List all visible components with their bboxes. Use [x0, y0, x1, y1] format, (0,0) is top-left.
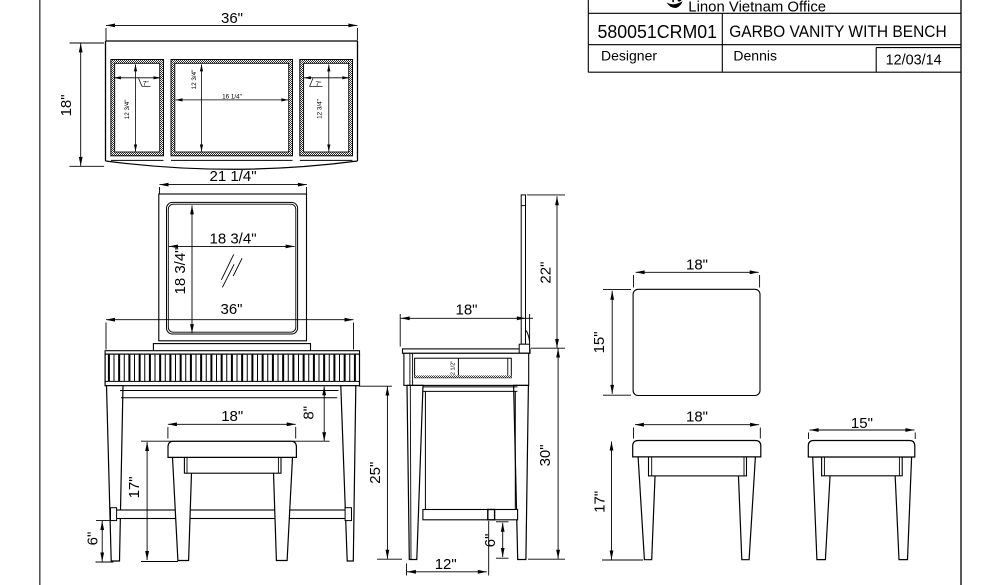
- svg-text:GARBO VANITY WITH BENCH: GARBO VANITY WITH BENCH: [729, 23, 947, 41]
- svg-text:8": 8": [301, 406, 318, 420]
- svg-text:36": 36": [220, 301, 242, 318]
- svg-text:18 3/4": 18 3/4": [209, 230, 256, 247]
- svg-text:Designer: Designer: [601, 48, 657, 64]
- svg-text:18": 18": [686, 256, 708, 273]
- svg-text:7": 7": [316, 81, 322, 88]
- svg-text:2 1/2": 2 1/2": [451, 361, 457, 375]
- svg-text:22": 22": [538, 262, 555, 284]
- svg-text:25": 25": [367, 462, 384, 484]
- svg-text:18": 18": [58, 94, 75, 116]
- svg-text:30": 30": [537, 444, 554, 466]
- svg-text:18": 18": [686, 408, 708, 425]
- svg-text:18": 18": [221, 408, 243, 425]
- svg-text:21 1/4": 21 1/4": [209, 168, 256, 185]
- svg-text:7": 7": [143, 81, 149, 88]
- svg-text:12 3/4": 12 3/4": [124, 100, 131, 120]
- svg-text:580051CRM01: 580051CRM01: [598, 22, 718, 42]
- svg-text:17": 17": [591, 491, 608, 513]
- svg-text:Linon Vietnam Office: Linon Vietnam Office: [688, 0, 826, 16]
- svg-text:12": 12": [435, 556, 457, 573]
- svg-text:6": 6": [85, 532, 102, 546]
- svg-text:15": 15": [851, 415, 873, 432]
- svg-text:36": 36": [221, 10, 243, 27]
- svg-text:6": 6": [482, 534, 499, 548]
- svg-text:18 3/4": 18 3/4": [172, 247, 189, 294]
- svg-text:12 3/4": 12 3/4": [316, 99, 323, 119]
- svg-text:16 1/4": 16 1/4": [222, 93, 242, 100]
- svg-text:17": 17": [126, 476, 143, 498]
- svg-text:15": 15": [591, 331, 608, 353]
- svg-text:18": 18": [455, 302, 477, 319]
- svg-text:Dennis: Dennis: [733, 48, 777, 64]
- svg-text:12/03/14: 12/03/14: [886, 53, 942, 69]
- svg-text:12 3/4": 12 3/4": [191, 70, 198, 90]
